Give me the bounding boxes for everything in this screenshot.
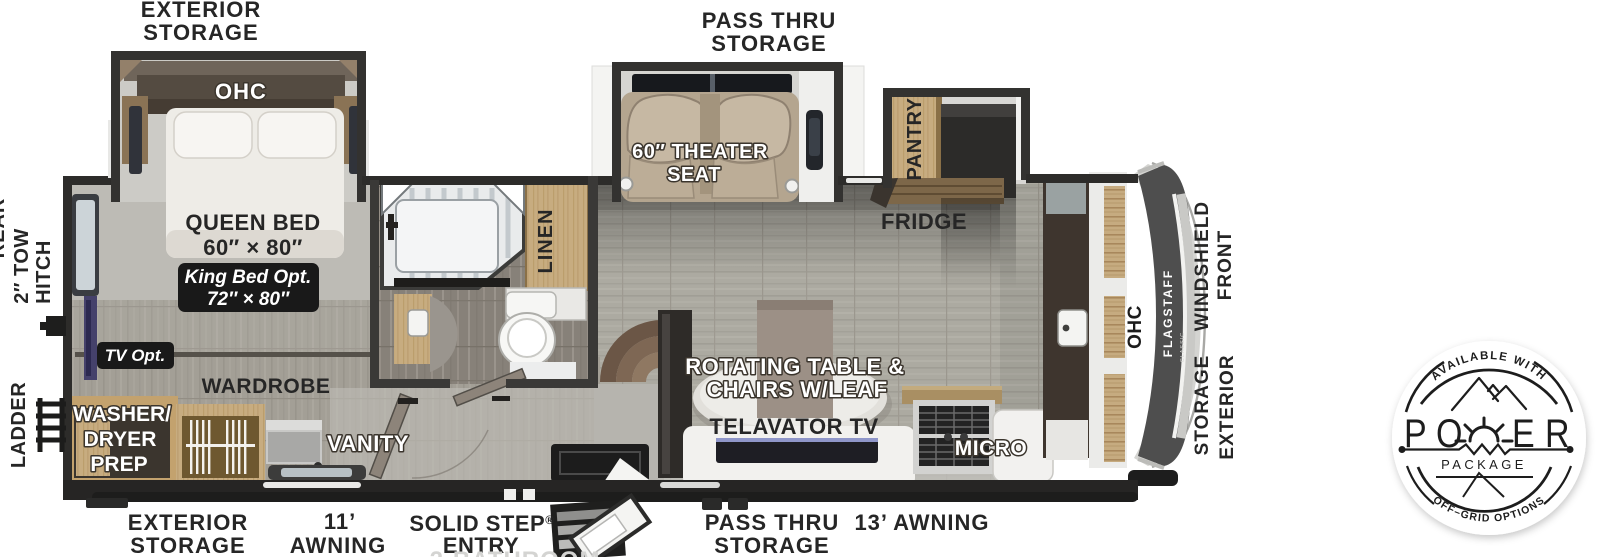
- svg-text:60″ × 80″: 60″ × 80″: [203, 235, 303, 260]
- svg-text:QUEEN BED: QUEEN BED: [185, 210, 320, 235]
- svg-text:SEAT: SEAT: [667, 164, 721, 186]
- svg-text:AWNING: AWNING: [290, 533, 386, 557]
- svg-text:2-BATHROOM: 2-BATHROOM: [430, 547, 601, 557]
- svg-text:PACKAGE: PACKAGE: [1441, 457, 1527, 472]
- svg-text:OHC: OHC: [215, 79, 267, 104]
- svg-text:EXTERIOR: EXTERIOR: [1217, 354, 1238, 459]
- svg-text:PASS THRU: PASS THRU: [705, 510, 840, 535]
- svg-text:PANTRY: PANTRY: [904, 97, 926, 180]
- svg-text:2″ TOW: 2″ TOW: [11, 228, 33, 304]
- svg-text:60″ THEATER: 60″ THEATER: [632, 141, 768, 163]
- svg-text:MICRO: MICRO: [955, 437, 1028, 460]
- svg-text:FLAGSTAFF: FLAGSTAFF: [1161, 269, 1175, 357]
- svg-text:CLASSIC: CLASSIC: [1180, 332, 1186, 363]
- svg-text:STORAGE: STORAGE: [711, 31, 826, 56]
- svg-text:STORAGE: STORAGE: [1192, 355, 1213, 456]
- svg-text:FRIDGE: FRIDGE: [881, 209, 967, 234]
- svg-text:WARDROBE: WARDROBE: [202, 375, 331, 398]
- svg-text:TELAVATOR TV: TELAVATOR TV: [709, 414, 878, 439]
- svg-text:PREP: PREP: [90, 453, 147, 476]
- svg-text:STORAGE: STORAGE: [130, 533, 245, 557]
- svg-text:FRONT: FRONT: [1215, 230, 1236, 300]
- svg-text:ROTATING TABLE &: ROTATING TABLE &: [685, 354, 904, 379]
- svg-text:CHAIRS W/LEAF: CHAIRS W/LEAF: [706, 377, 887, 402]
- svg-text:WASHER/: WASHER/: [73, 403, 171, 426]
- svg-text:EXTERIOR: EXTERIOR: [141, 0, 261, 22]
- svg-text:King Bed Opt.: King Bed Opt.: [185, 267, 312, 288]
- svg-text:STORAGE: STORAGE: [143, 20, 258, 45]
- svg-text:OHC: OHC: [1125, 305, 1146, 349]
- svg-text:PASS THRU: PASS THRU: [702, 8, 837, 33]
- svg-text:HITCH: HITCH: [33, 240, 55, 304]
- svg-text:LINEN: LINEN: [535, 209, 557, 274]
- svg-text:TV Opt.: TV Opt.: [105, 346, 165, 365]
- svg-text:DRYER: DRYER: [84, 428, 157, 451]
- svg-text:11’: 11’: [324, 509, 356, 534]
- svg-text:LADDER: LADDER: [8, 382, 30, 468]
- svg-text:REAR: REAR: [0, 198, 9, 259]
- svg-text:72″ × 80″: 72″ × 80″: [207, 289, 290, 310]
- svg-text:STORAGE: STORAGE: [714, 533, 829, 557]
- svg-text:EXTERIOR: EXTERIOR: [128, 510, 248, 535]
- svg-text:13’ AWNING: 13’ AWNING: [854, 510, 989, 535]
- svg-text:WINDSHIELD: WINDSHIELD: [1192, 201, 1213, 331]
- svg-text:VANITY: VANITY: [327, 431, 409, 456]
